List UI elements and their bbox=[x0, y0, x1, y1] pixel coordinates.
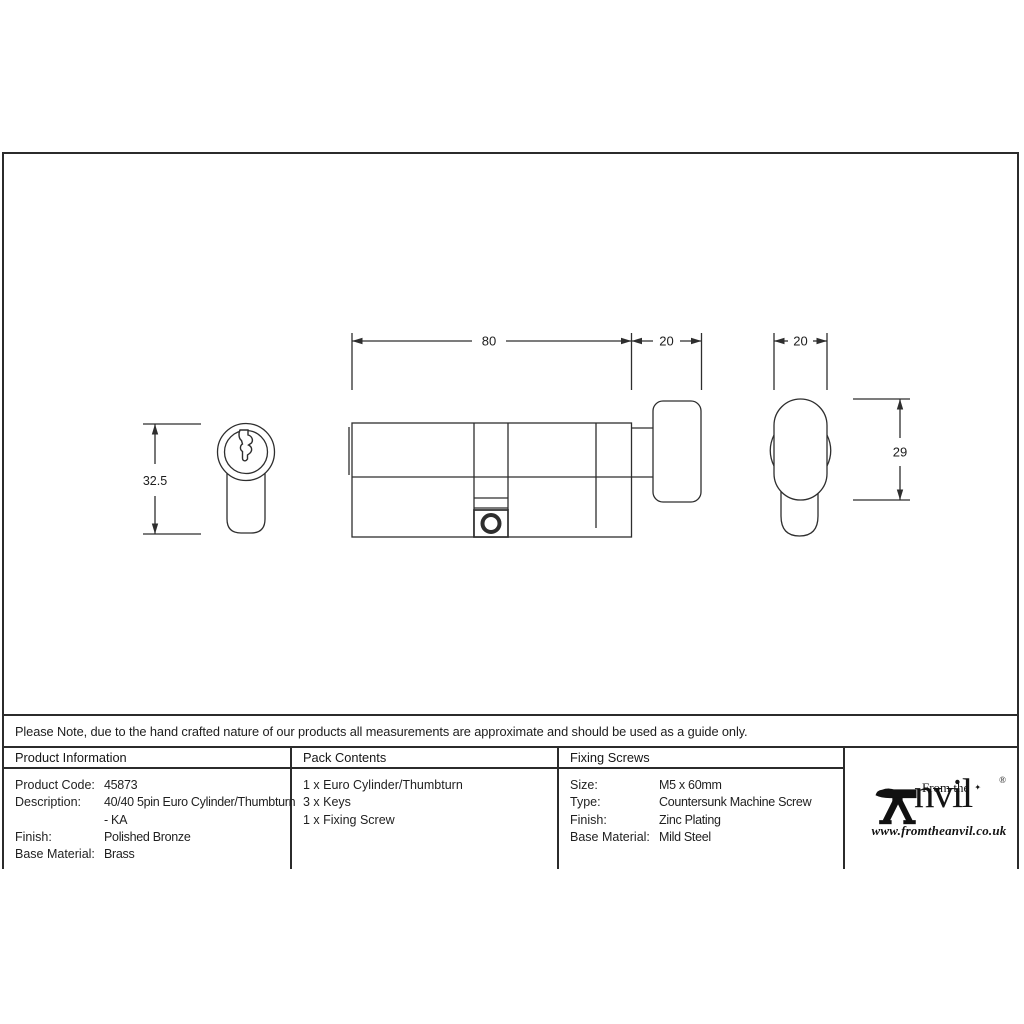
row-value: Brass bbox=[104, 846, 134, 863]
dim-label-32-5: 32.5 bbox=[143, 474, 167, 488]
row-value: 45873 bbox=[104, 777, 137, 794]
anvil-logo: nvil From the✦ ® www.fromtheanvil.co.uk bbox=[874, 778, 1004, 842]
dimension-body-length: 80 bbox=[352, 333, 632, 390]
product-info-header-label: Product Information bbox=[15, 750, 127, 765]
table-row: Finish: Zinc Plating bbox=[570, 812, 843, 829]
outer-frame: 32.5 bbox=[2, 152, 1019, 869]
row-label bbox=[15, 812, 104, 829]
pack-contents-column: Pack Contents 1 x Euro Cylinder/Thumbtur… bbox=[292, 748, 559, 869]
logo-url: www.fromtheanvil.co.uk bbox=[866, 823, 1012, 839]
row-value: 40/40 5pin Euro Cylinder/Thumbturn bbox=[104, 794, 295, 811]
row-label: Description: bbox=[15, 794, 104, 811]
dimension-turn-width: 20 bbox=[774, 333, 827, 390]
row-label: Finish: bbox=[570, 812, 659, 829]
row-label: Base Material: bbox=[15, 846, 104, 863]
row-value: Countersunk Machine Screw bbox=[659, 794, 811, 811]
pack-contents-header-label: Pack Contents bbox=[303, 750, 386, 765]
table-row: Finish: Polished Bronze bbox=[15, 829, 290, 846]
product-info-header: Product Information bbox=[4, 748, 290, 769]
logo-tagline: From the✦ bbox=[922, 780, 981, 796]
table-row: Type: Countersunk Machine Screw bbox=[570, 794, 843, 811]
dimension-neck-length: 20 bbox=[632, 333, 702, 390]
table-row: Base Material: Mild Steel bbox=[570, 829, 843, 846]
thumbturn-end-view bbox=[770, 399, 831, 536]
dim-label-80: 80 bbox=[482, 334, 496, 349]
cylinder-side-view bbox=[349, 401, 701, 537]
logo-tagline-text: From the bbox=[922, 780, 969, 795]
drawing-area: 32.5 bbox=[4, 154, 1017, 714]
cylinder-front-view bbox=[218, 424, 275, 534]
anvil-icon bbox=[874, 785, 918, 826]
technical-drawing-svg: 32.5 bbox=[4, 154, 1017, 714]
row-label: Base Material: bbox=[570, 829, 659, 846]
pack-contents-body: 1 x Euro Cylinder/Thumbturn 3 x Keys 1 x… bbox=[292, 769, 557, 829]
fixing-screws-header: Fixing Screws bbox=[559, 748, 843, 769]
dim-label-29: 29 bbox=[893, 445, 907, 460]
fixing-screws-column: Fixing Screws Size: M5 x 60mm Type: Coun… bbox=[559, 748, 845, 869]
dimension-turn-height: 29 bbox=[853, 399, 910, 500]
list-item: 3 x Keys bbox=[303, 794, 557, 811]
table-row: Description: 40/40 5pin Euro Cylinder/Th… bbox=[15, 794, 290, 811]
list-item: 1 x Euro Cylinder/Thumbturn bbox=[303, 777, 557, 794]
pack-contents-header: Pack Contents bbox=[292, 748, 557, 769]
row-value: - KA bbox=[104, 812, 127, 829]
row-value: Mild Steel bbox=[659, 829, 711, 846]
row-label: Type: bbox=[570, 794, 659, 811]
row-value: M5 x 60mm bbox=[659, 777, 722, 794]
diamond-icon: ✦ bbox=[974, 783, 981, 792]
spec-sheet-page: 32.5 bbox=[0, 0, 1024, 1024]
product-info-body: Product Code: 45873 Description: 40/40 5… bbox=[4, 769, 290, 863]
row-value: Zinc Plating bbox=[659, 812, 721, 829]
row-value: Polished Bronze bbox=[104, 829, 191, 846]
table-row: Base Material: Brass bbox=[15, 846, 290, 863]
dim-label-20-turn: 20 bbox=[793, 334, 807, 349]
note-bar: Please Note, due to the hand crafted nat… bbox=[4, 714, 1017, 746]
fixing-screws-body: Size: M5 x 60mm Type: Countersunk Machin… bbox=[559, 769, 843, 846]
fixing-screws-header-label: Fixing Screws bbox=[570, 750, 650, 765]
table-row: Size: M5 x 60mm bbox=[570, 777, 843, 794]
product-info-column: Product Information Product Code: 45873 … bbox=[4, 748, 292, 869]
row-label: Size: bbox=[570, 777, 659, 794]
dim-label-20-neck: 20 bbox=[659, 334, 673, 349]
logo-cell: nvil From the✦ ® www.fromtheanvil.co.uk bbox=[845, 748, 1017, 869]
table-row: Product Code: 45873 bbox=[15, 777, 290, 794]
table-row: - KA bbox=[15, 812, 290, 829]
thumbturn-knob-side bbox=[653, 401, 701, 502]
row-label: Product Code: bbox=[15, 777, 104, 794]
list-item: 1 x Fixing Screw bbox=[303, 812, 557, 829]
spec-table: Product Information Product Code: 45873 … bbox=[4, 746, 1017, 869]
note-text: Please Note, due to the hand crafted nat… bbox=[15, 724, 748, 739]
registered-trademark-icon: ® bbox=[999, 775, 1006, 785]
row-label: Finish: bbox=[15, 829, 104, 846]
dimension-face-height: 32.5 bbox=[143, 424, 201, 534]
